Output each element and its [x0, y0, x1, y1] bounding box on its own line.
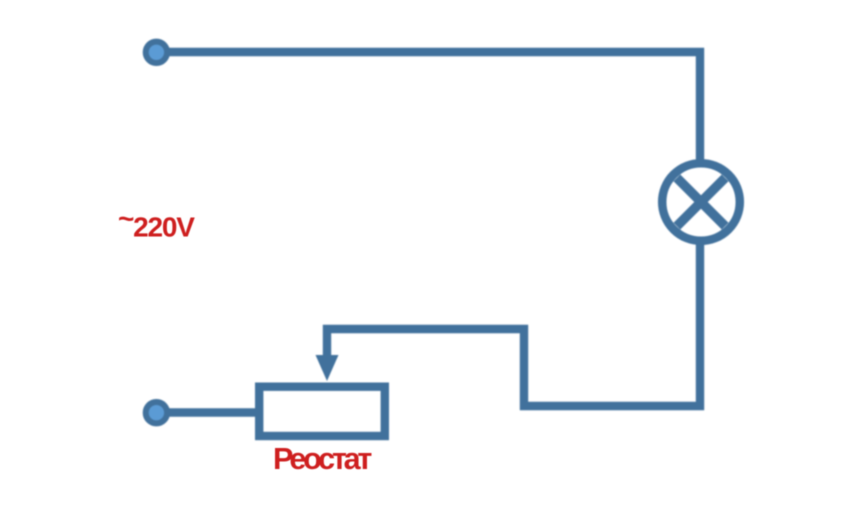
- svg-text:~220V: ~220V: [118, 203, 195, 243]
- svg-text:Реостат: Реостат: [273, 442, 372, 476]
